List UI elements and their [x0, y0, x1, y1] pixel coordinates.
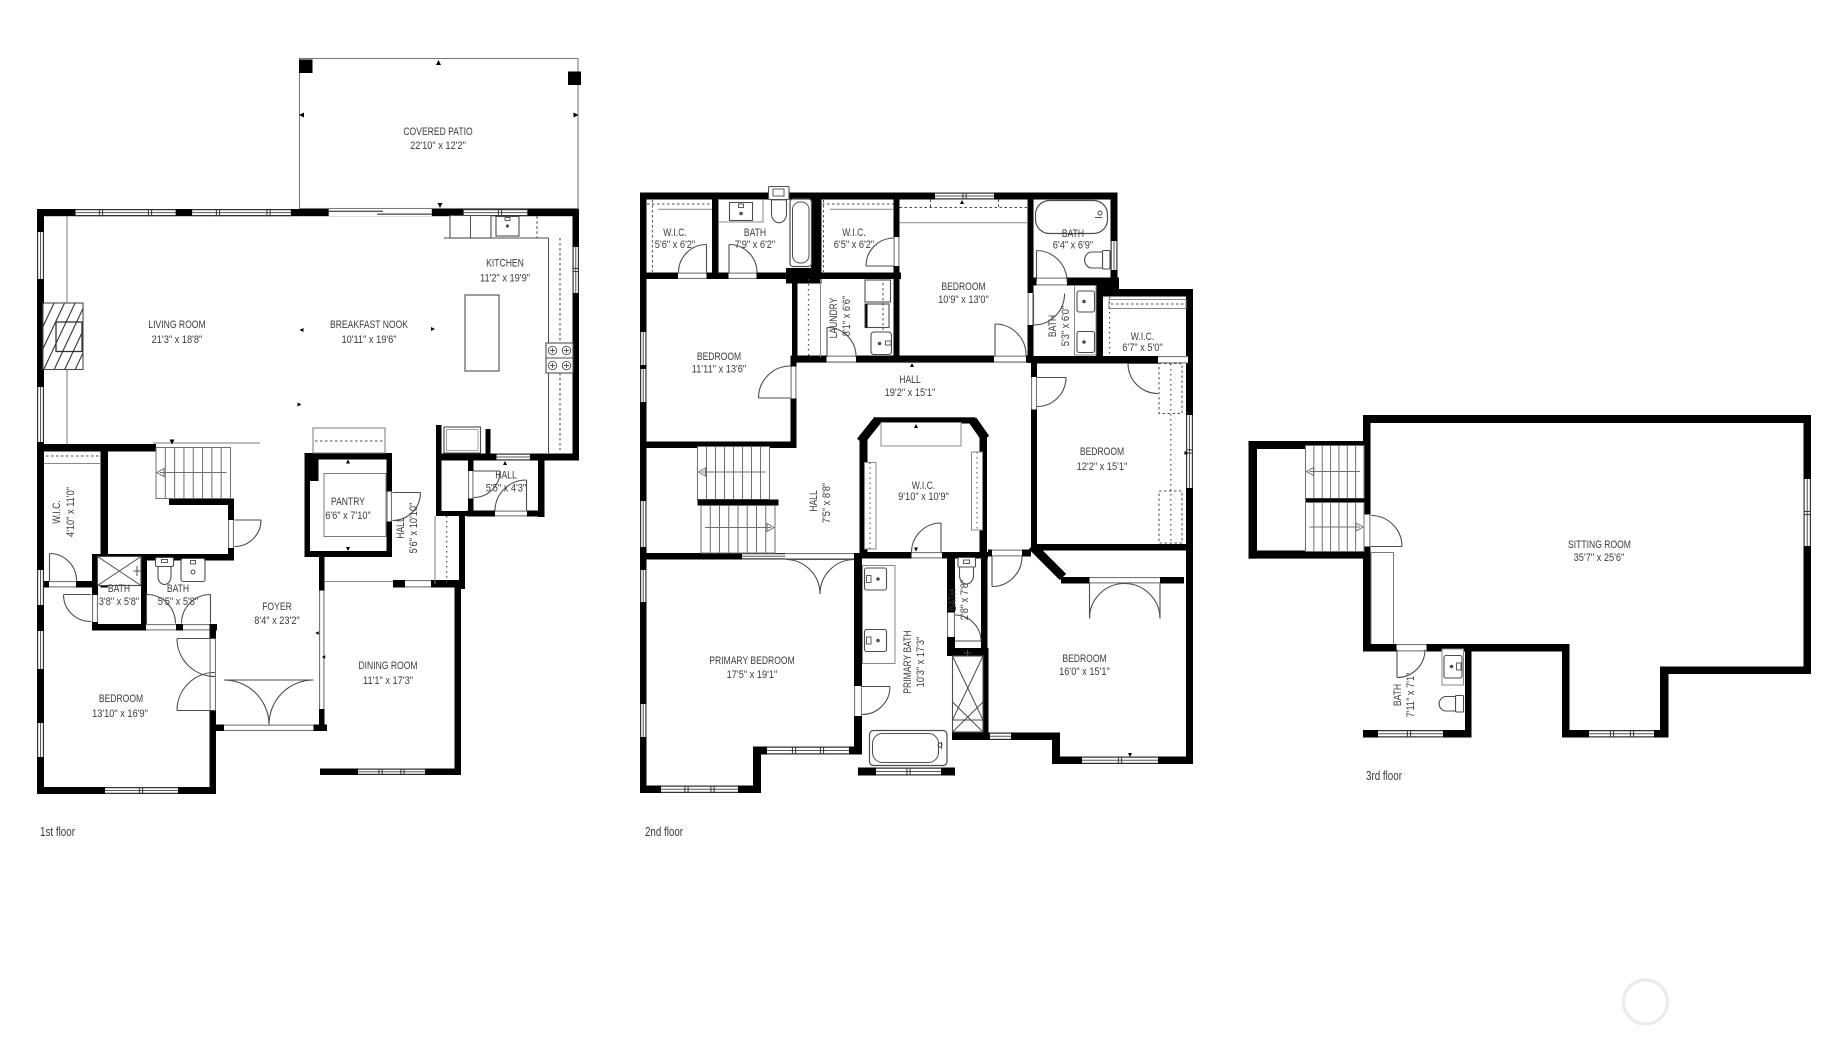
svg-text:10'3" x 17'3": 10'3" x 17'3" — [915, 637, 927, 688]
svg-text:DINING ROOM: DINING ROOM — [358, 660, 417, 672]
svg-text:BATH: BATH — [1392, 684, 1404, 706]
svg-text:BREAKFAST NOOK: BREAKFAST NOOK — [330, 319, 409, 331]
svg-text:5'6" x 10'10": 5'6" x 10'10" — [408, 503, 420, 554]
svg-text:BEDROOM: BEDROOM — [941, 281, 985, 293]
svg-text:5'3" x 6'0": 5'3" x 6'0" — [1060, 306, 1072, 346]
svg-text:16'0" x 15'1": 16'0" x 15'1" — [1059, 666, 1110, 678]
svg-text:10'11" x 19'6": 10'11" x 19'6" — [341, 334, 396, 346]
svg-text:1st floor: 1st floor — [40, 824, 76, 839]
svg-text:LAUNDRY: LAUNDRY — [828, 297, 840, 338]
svg-text:2nd floor: 2nd floor — [645, 824, 684, 839]
svg-text:7'9" x 6'2": 7'9" x 6'2" — [735, 239, 775, 251]
svg-text:11'1" x 17'3": 11'1" x 17'3" — [363, 675, 413, 687]
svg-text:3rd floor: 3rd floor — [1366, 768, 1402, 783]
svg-text:BATH: BATH — [167, 583, 189, 595]
svg-text:6'5" x 6'2": 6'5" x 6'2" — [834, 239, 874, 251]
svg-text:BEDROOM: BEDROOM — [1080, 446, 1124, 458]
svg-text:35'7" x 25'6": 35'7" x 25'6" — [1574, 552, 1625, 564]
svg-text:5'6" x 6'2": 5'6" x 6'2" — [655, 239, 695, 251]
svg-text:7'5" x 8'8": 7'5" x 8'8" — [821, 483, 833, 523]
svg-text:6'6" x 7'10": 6'6" x 7'10" — [325, 510, 371, 522]
svg-text:W.I.C.: W.I.C. — [663, 227, 686, 239]
svg-text:FOYER: FOYER — [262, 601, 292, 613]
svg-text:2'8" x 7'8": 2'8" x 7'8" — [959, 580, 971, 620]
svg-text:LIVING ROOM: LIVING ROOM — [148, 319, 205, 331]
svg-text:HALL: HALL — [899, 374, 921, 386]
svg-text:3'8" x 5'8": 3'8" x 5'8" — [99, 596, 139, 608]
svg-text:5'5" x 4'3": 5'5" x 4'3" — [486, 483, 526, 495]
svg-text:11'11" x 13'6": 11'11" x 13'6" — [692, 364, 746, 376]
svg-text:7'11" x 7'1": 7'11" x 7'1" — [1405, 673, 1417, 718]
svg-text:9'10" x 10'9": 9'10" x 10'9" — [898, 491, 949, 503]
svg-text:HALL: HALL — [395, 517, 407, 539]
svg-text:W.I.C.: W.I.C. — [842, 227, 865, 239]
svg-text:PRIMARY BEDROOM: PRIMARY BEDROOM — [709, 655, 795, 667]
svg-text:BATH: BATH — [1062, 228, 1084, 240]
svg-text:22'10" x 12'2": 22'10" x 12'2" — [410, 140, 466, 152]
svg-text:BATH: BATH — [1047, 315, 1059, 337]
svg-text:BEDROOM: BEDROOM — [697, 351, 741, 363]
svg-text:HALL: HALL — [495, 470, 517, 482]
svg-text:PRIMARY BATH: PRIMARY BATH — [902, 630, 914, 693]
svg-text:6'4" x 6'9": 6'4" x 6'9" — [1053, 240, 1093, 252]
svg-text:21'3" x 18'8": 21'3" x 18'8" — [152, 334, 203, 346]
svg-text:6'7" x 5'0": 6'7" x 5'0" — [1122, 342, 1162, 354]
svg-text:17'5" x 19'1": 17'5" x 19'1" — [727, 669, 778, 681]
svg-text:PANTRY: PANTRY — [331, 496, 366, 508]
svg-text:BEDROOM: BEDROOM — [99, 693, 143, 705]
svg-text:11'2" x 19'9": 11'2" x 19'9" — [480, 273, 530, 285]
svg-text:12'2" x 15'1": 12'2" x 15'1" — [1077, 461, 1128, 473]
svg-text:HALL: HALL — [808, 490, 820, 512]
svg-text:BATH: BATH — [108, 583, 130, 595]
svg-text:10'9" x 13'0": 10'9" x 13'0" — [938, 294, 989, 306]
svg-text:13'10" x 16'9": 13'10" x 16'9" — [92, 708, 148, 720]
svg-text:8'1" x 6'6": 8'1" x 6'6" — [841, 296, 853, 336]
svg-text:BATH: BATH — [947, 589, 959, 611]
svg-text:COVERED PATIO: COVERED PATIO — [403, 126, 473, 138]
svg-text:BATH: BATH — [744, 227, 766, 239]
svg-text:8'4" x 23'2": 8'4" x 23'2" — [254, 615, 300, 627]
svg-text:W.I.C.: W.I.C. — [51, 500, 63, 523]
svg-text:KITCHEN: KITCHEN — [486, 258, 524, 270]
svg-text:BEDROOM: BEDROOM — [1062, 653, 1106, 665]
svg-text:SITTING ROOM: SITTING ROOM — [1568, 539, 1631, 551]
svg-text:4'10" x 11'0": 4'10" x 11'0" — [65, 487, 77, 537]
svg-text:19'2" x 15'1": 19'2" x 15'1" — [885, 387, 936, 399]
svg-text:5'5" x 5'8": 5'5" x 5'8" — [158, 596, 198, 608]
